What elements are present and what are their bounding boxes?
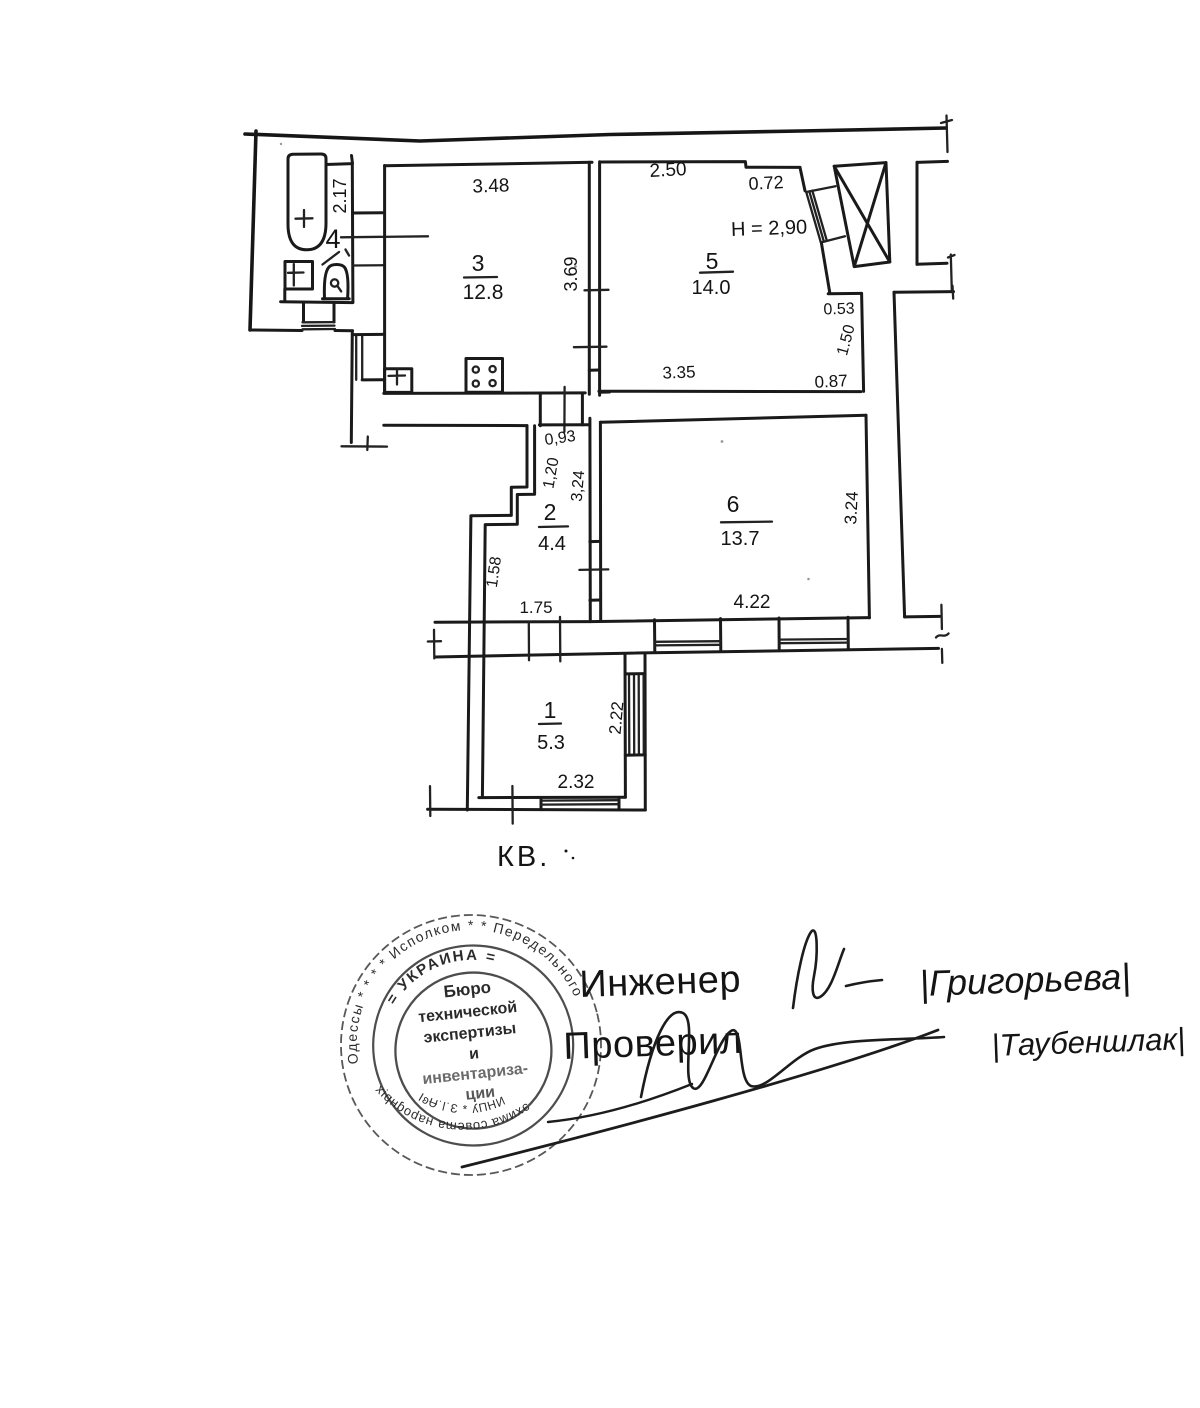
- svg-text:|Таубеншлак|: |Таубеншлак|: [991, 1021, 1186, 1063]
- svg-text:1.75: 1.75: [519, 598, 552, 617]
- svg-text:H = 2,90: H = 2,90: [731, 216, 808, 241]
- svg-text:3.24: 3.24: [841, 491, 862, 525]
- svg-text:5: 5: [706, 248, 719, 274]
- svg-text:3,24: 3,24: [569, 470, 589, 503]
- svg-text:1: 1: [544, 697, 557, 723]
- svg-text:14.0: 14.0: [692, 277, 731, 299]
- svg-text:Проверил: Проверил: [563, 1020, 743, 1068]
- svg-text:3: 3: [472, 250, 485, 276]
- svg-text:0.87: 0.87: [814, 371, 848, 392]
- svg-text:|Григорьева|: |Григорьева|: [919, 956, 1131, 1004]
- svg-text:4: 4: [325, 224, 340, 254]
- svg-text:2.32: 2.32: [558, 772, 595, 793]
- svg-text:2.17: 2.17: [330, 178, 350, 213]
- svg-text:ции: ции: [465, 1084, 496, 1104]
- svg-text:КВ.: КВ.: [497, 841, 550, 873]
- svg-text:0.72: 0.72: [748, 172, 784, 194]
- svg-text:3.48: 3.48: [472, 175, 510, 197]
- svg-text:13.7: 13.7: [721, 528, 760, 550]
- svg-text:2.22: 2.22: [606, 701, 628, 736]
- svg-text:4.22: 4.22: [734, 592, 771, 613]
- svg-text:2.50: 2.50: [649, 159, 687, 182]
- svg-text:6: 6: [727, 491, 740, 517]
- svg-text:3.69: 3.69: [561, 256, 581, 291]
- svg-text:2: 2: [544, 499, 557, 525]
- svg-text:0.53: 0.53: [823, 300, 855, 318]
- svg-text:Инженер: Инженер: [579, 958, 742, 1006]
- svg-text:и: и: [468, 1045, 480, 1063]
- svg-text:4.4: 4.4: [538, 533, 566, 555]
- svg-text:12.8: 12.8: [463, 281, 504, 304]
- svg-text:3.35: 3.35: [662, 362, 696, 382]
- svg-text:5.3: 5.3: [537, 732, 565, 754]
